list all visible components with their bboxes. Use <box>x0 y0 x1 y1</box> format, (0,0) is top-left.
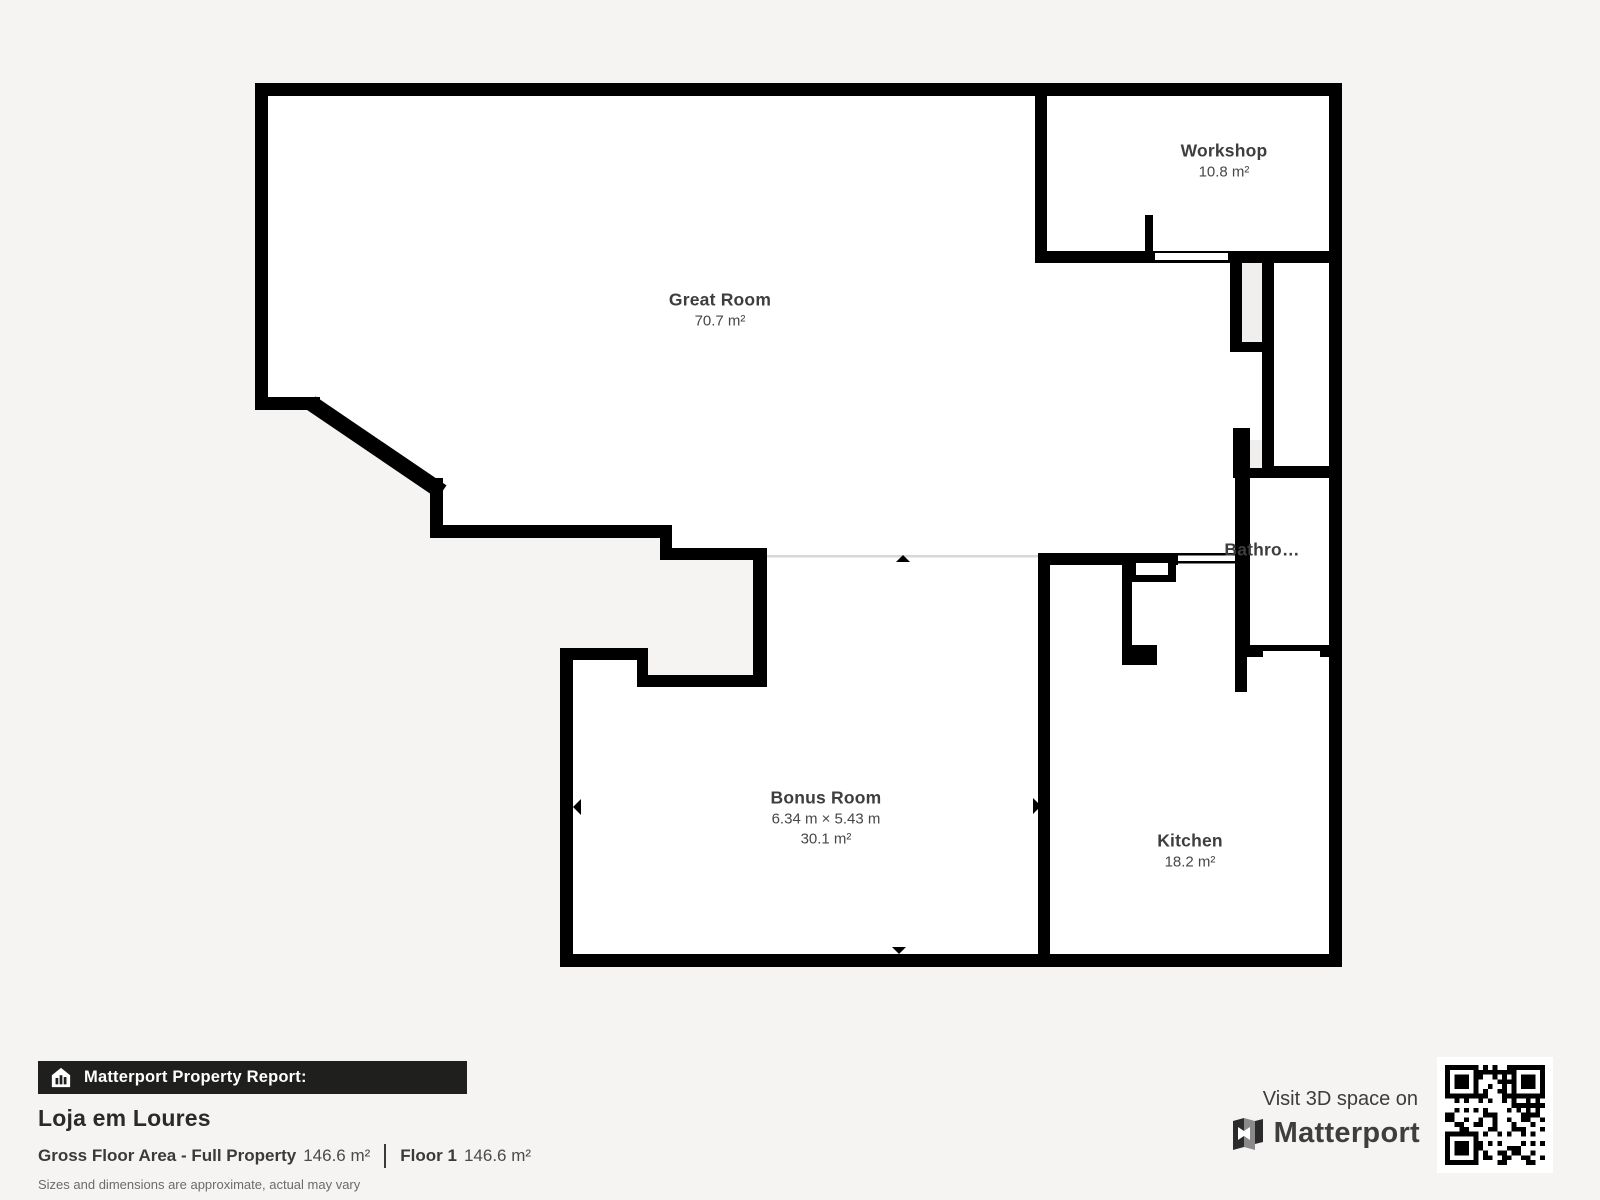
room-name: Bonus Room <box>771 787 882 810</box>
property-name: Loja em Loures <box>38 1105 738 1132</box>
matterport-logo-icon <box>1231 1118 1265 1150</box>
report-badge: Matterport Property Report: <box>38 1061 467 1094</box>
room-area: 18.2 m² <box>1157 853 1223 873</box>
disclaimer-text: Sizes and dimensions are approximate, ac… <box>38 1177 738 1192</box>
matterport-wordmark: Matterport <box>1274 1117 1420 1150</box>
room-label-workshop: Workshop 10.8 m² <box>1181 140 1268 183</box>
room-dimensions: 6.34 m × 5.43 m <box>771 810 882 830</box>
room-name: Bathro… <box>1224 538 1299 561</box>
room-area: 10.8 m² <box>1181 163 1268 183</box>
room-area: 70.7 m² <box>669 312 771 332</box>
matterport-logo: Matterport <box>1215 1117 1420 1150</box>
floor-plan <box>0 0 1600 1200</box>
matterport-promo: Visit 3D space on Matterport <box>1215 1088 1420 1150</box>
report-info: Matterport Property Report: Loja em Lour… <box>38 1061 738 1192</box>
room-label-bathroom: Bathro… <box>1224 538 1299 561</box>
gross-floor-area-label: Gross Floor Area - Full Property <box>38 1146 296 1166</box>
property-report-page: Great Room 70.7 m² Workshop 10.8 m² Bath… <box>0 0 1600 1200</box>
room-name: Kitchen <box>1157 830 1223 853</box>
house-chart-icon <box>50 1067 72 1088</box>
room-label-bonus-room: Bonus Room 6.34 m × 5.43 m 30.1 m² <box>771 787 882 850</box>
room-name: Workshop <box>1181 140 1268 163</box>
visit-3d-text: Visit 3D space on <box>1215 1088 1420 1111</box>
gross-floor-area-value: 146.6 m² <box>303 1146 370 1166</box>
room-name: Great Room <box>669 289 771 312</box>
floor-area-row: Gross Floor Area - Full Property 146.6 m… <box>38 1144 738 1168</box>
room-label-kitchen: Kitchen 18.2 m² <box>1157 830 1223 873</box>
report-badge-label: Matterport Property Report: <box>84 1068 307 1087</box>
divider <box>384 1144 386 1168</box>
room-label-great-room: Great Room 70.7 m² <box>669 289 771 332</box>
room-area: 30.1 m² <box>771 830 882 850</box>
qr-code <box>1437 1057 1553 1173</box>
floor-label: Floor 1 <box>400 1146 457 1166</box>
floor-value: 146.6 m² <box>464 1146 531 1166</box>
